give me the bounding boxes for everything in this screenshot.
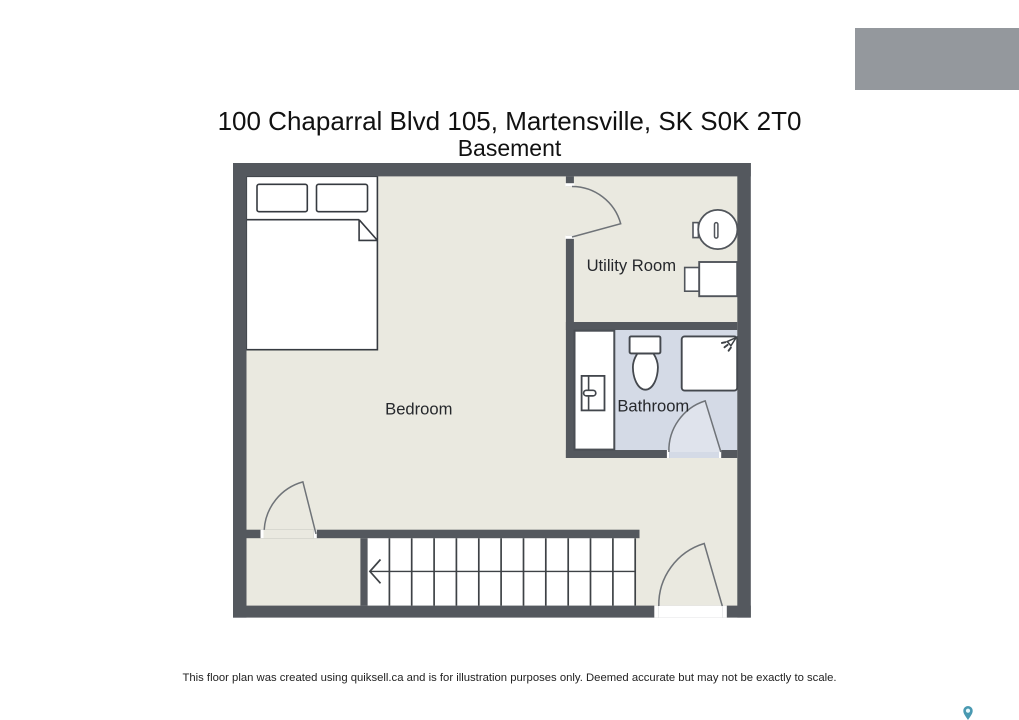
svg-text:Bathroom: Bathroom <box>617 396 689 415</box>
svg-text:Bedroom: Bedroom <box>385 399 452 418</box>
svg-text:Utility Room: Utility Room <box>587 256 676 275</box>
